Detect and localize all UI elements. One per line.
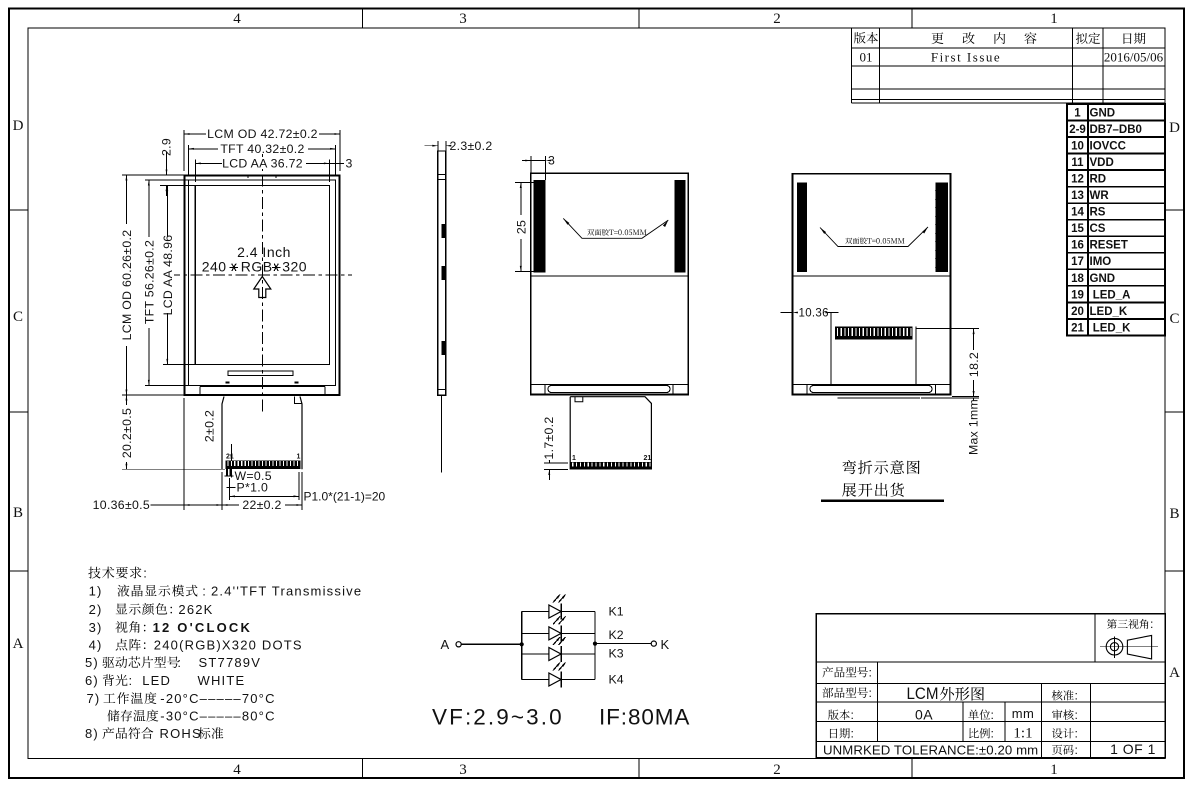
svg-text:18.2: 18.2 — [967, 352, 981, 377]
svg-text:Max 1mm: Max 1mm — [967, 399, 981, 455]
svg-text:25: 25 — [515, 220, 529, 234]
svg-text:5): 5) — [85, 655, 99, 670]
svg-text:01: 01 — [860, 50, 873, 65]
svg-text:B: B — [13, 505, 23, 521]
svg-text:3: 3 — [548, 154, 555, 168]
svg-text:RESET: RESET — [1090, 240, 1128, 252]
svg-text:A: A — [13, 636, 24, 652]
svg-text:RGB: RGB — [241, 259, 273, 275]
svg-text::: : — [869, 686, 873, 700]
svg-text:LCD AA 36.72: LCD AA 36.72 — [222, 157, 303, 171]
svg-text::: : — [851, 708, 855, 722]
svg-text:11: 11 — [1071, 157, 1084, 169]
svg-text::: : — [991, 708, 995, 722]
svg-text:1 OF 1: 1 OF 1 — [1110, 741, 1156, 757]
svg-text:WHITE: WHITE — [198, 673, 246, 688]
svg-text::: : — [129, 673, 134, 688]
svg-text:CS: CS — [1090, 223, 1106, 235]
svg-text:TFT 56.26±0.2: TFT 56.26±0.2 — [143, 240, 157, 324]
svg-text:19: 19 — [1071, 289, 1084, 301]
svg-text:K2: K2 — [609, 628, 624, 642]
svg-text:-20°C–––––70°C: -20°C–––––70°C — [160, 691, 275, 706]
svg-text:1: 1 — [572, 455, 576, 462]
svg-text:262K: 262K — [178, 602, 213, 617]
svg-text:13: 13 — [1071, 190, 1084, 202]
svg-text:12: 12 — [1071, 174, 1084, 186]
svg-text:LCD AA 48.96: LCD AA 48.96 — [161, 235, 175, 316]
svg-text::: : — [1075, 689, 1079, 703]
svg-text:C: C — [1169, 311, 1179, 327]
svg-text:TFT 40.32±0.2: TFT 40.32±0.2 — [220, 142, 304, 156]
svg-text:240: 240 — [202, 259, 227, 275]
svg-text:10.36: 10.36 — [799, 308, 829, 320]
svg-text:2.4''TFT Transmissive: 2.4''TFT Transmissive — [211, 584, 362, 599]
svg-text:LED_K: LED_K — [1090, 306, 1128, 318]
svg-text::: : — [851, 727, 855, 741]
svg-text:VDD: VDD — [1090, 157, 1114, 169]
svg-text::: : — [869, 666, 873, 680]
svg-text:LED_K: LED_K — [1090, 322, 1132, 334]
svg-text::: : — [1075, 743, 1079, 757]
svg-text:IOVCC: IOVCC — [1090, 141, 1126, 153]
svg-text:4: 4 — [233, 11, 241, 27]
svg-text::: : — [1150, 617, 1154, 631]
svg-text:First Issue: First Issue — [931, 50, 1001, 65]
svg-text:10: 10 — [1071, 141, 1084, 153]
svg-text:18: 18 — [1071, 273, 1084, 285]
svg-text:B: B — [1169, 506, 1179, 522]
svg-text:C: C — [13, 309, 23, 325]
svg-text:20.2±0.5: 20.2±0.5 — [120, 408, 134, 458]
svg-text:VF:2.9~3.0: VF:2.9~3.0 — [432, 705, 564, 730]
svg-text:P*1.0: P*1.0 — [237, 481, 269, 495]
svg-text:1): 1) — [89, 584, 103, 599]
svg-text:D: D — [1169, 120, 1180, 136]
svg-text:LCM: LCM — [907, 685, 939, 703]
svg-text:K1: K1 — [609, 605, 624, 619]
svg-text:8): 8) — [85, 726, 99, 741]
svg-text:3): 3) — [89, 620, 103, 635]
svg-text:6): 6) — [85, 673, 99, 688]
svg-text:3: 3 — [459, 11, 467, 27]
svg-text:D: D — [13, 118, 24, 134]
svg-text::: : — [177, 655, 182, 670]
svg-text:K4: K4 — [609, 673, 624, 687]
svg-text::: : — [143, 566, 148, 581]
svg-text:12 O'CLOCK: 12 O'CLOCK — [153, 620, 253, 635]
svg-text:mm: mm — [1012, 706, 1034, 721]
svg-text::: : — [1075, 708, 1079, 722]
svg-text:UNMRKED TOLERANCE:±0.20 mm: UNMRKED TOLERANCE:±0.20 mm — [823, 743, 1038, 758]
svg-text:LED: LED — [142, 673, 171, 688]
svg-text:2-9: 2-9 — [1069, 124, 1086, 136]
svg-text:21: 21 — [226, 454, 234, 461]
svg-text:IMO: IMO — [1090, 256, 1112, 268]
svg-text:1.7±0.2: 1.7±0.2 — [542, 416, 556, 459]
svg-text:3: 3 — [459, 762, 467, 778]
svg-text:GND: GND — [1090, 108, 1116, 120]
svg-text:15: 15 — [1071, 223, 1084, 235]
svg-text:1: 1 — [1050, 11, 1058, 27]
svg-text:1:1: 1:1 — [1013, 726, 1032, 742]
svg-text:0A: 0A — [915, 707, 933, 723]
svg-text:1: 1 — [1050, 762, 1058, 778]
svg-text:4: 4 — [233, 762, 241, 778]
svg-text:21: 21 — [644, 455, 652, 462]
svg-text:20: 20 — [1071, 306, 1084, 318]
svg-text:RD: RD — [1090, 174, 1107, 186]
svg-text:240(RGB)X320 DOTS: 240(RGB)X320 DOTS — [154, 638, 303, 653]
svg-text:14: 14 — [1071, 207, 1084, 219]
svg-text:2: 2 — [773, 11, 781, 27]
svg-text:10.36±0.5: 10.36±0.5 — [93, 498, 150, 512]
svg-text:GND: GND — [1090, 273, 1116, 285]
svg-text:320: 320 — [282, 259, 307, 275]
svg-text:2016/05/06: 2016/05/06 — [1104, 50, 1164, 65]
svg-text:K: K — [661, 637, 670, 652]
svg-text:1: 1 — [297, 454, 301, 461]
svg-text:P1.0*(21-1)=20: P1.0*(21-1)=20 — [304, 490, 386, 504]
svg-text:2.9: 2.9 — [160, 138, 174, 156]
svg-text:2): 2) — [89, 602, 103, 617]
svg-text:RS: RS — [1090, 207, 1106, 219]
svg-text:IF:80MA: IF:80MA — [599, 705, 690, 730]
svg-text:A: A — [441, 637, 450, 652]
svg-text:7): 7) — [87, 691, 101, 706]
svg-text:LED_A: LED_A — [1090, 289, 1131, 301]
svg-text:WR: WR — [1090, 190, 1110, 202]
svg-text:16: 16 — [1071, 240, 1084, 252]
svg-text::: : — [202, 584, 207, 599]
svg-text:4): 4) — [89, 638, 103, 653]
svg-text:K3: K3 — [609, 647, 624, 661]
svg-text:21: 21 — [1071, 322, 1084, 334]
svg-text:A: A — [1169, 665, 1180, 681]
svg-text:ST7789V: ST7789V — [199, 655, 262, 670]
svg-text:LCM OD 60.26±0.2: LCM OD 60.26±0.2 — [120, 230, 134, 341]
svg-text:22±0.2: 22±0.2 — [242, 498, 281, 512]
svg-text:1: 1 — [1074, 108, 1081, 120]
svg-text::: : — [991, 727, 995, 741]
svg-text:LCM OD 42.72±0.2: LCM OD 42.72±0.2 — [207, 127, 318, 141]
svg-text:DB7–DB0: DB7–DB0 — [1090, 124, 1142, 136]
svg-text:17: 17 — [1071, 256, 1084, 268]
svg-text:2: 2 — [773, 762, 781, 778]
svg-text:2±0.2: 2±0.2 — [203, 410, 217, 442]
svg-text::: : — [1075, 727, 1079, 741]
svg-text:2.3±0.2: 2.3±0.2 — [450, 139, 493, 153]
svg-text:3: 3 — [346, 157, 353, 171]
svg-text:-30°C–––––80°C: -30°C–––––80°C — [160, 709, 275, 724]
svg-text:ROHS: ROHS — [160, 726, 202, 741]
